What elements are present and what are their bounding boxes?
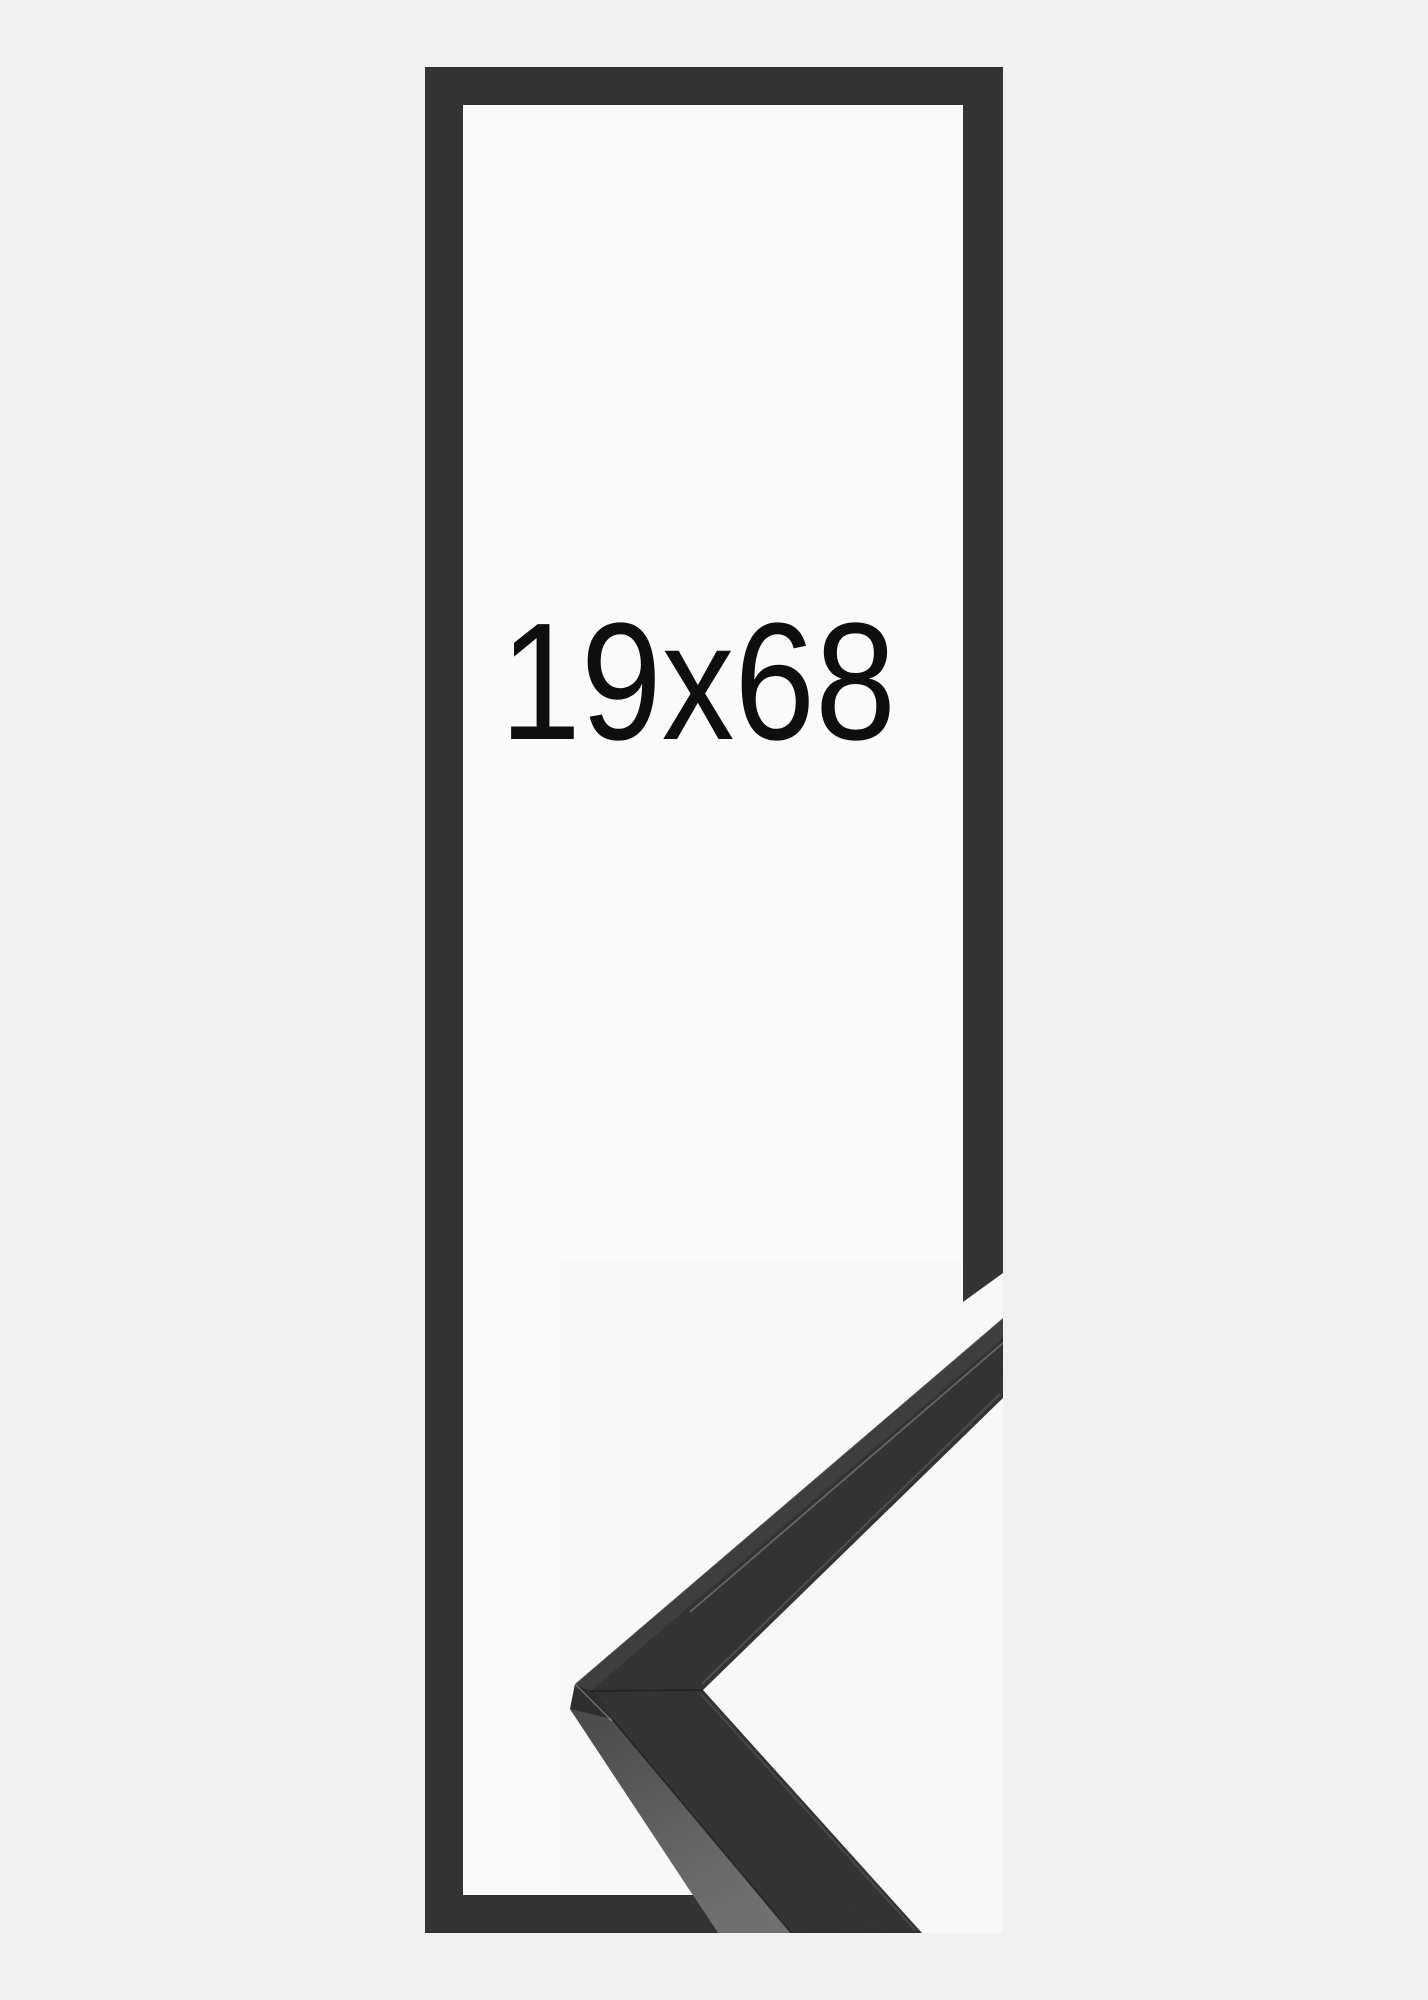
product-image: 19x68 [0, 0, 1428, 2000]
frame-size-illustration [0, 0, 1428, 2000]
frame-size-label: 19x68 [447, 599, 950, 766]
